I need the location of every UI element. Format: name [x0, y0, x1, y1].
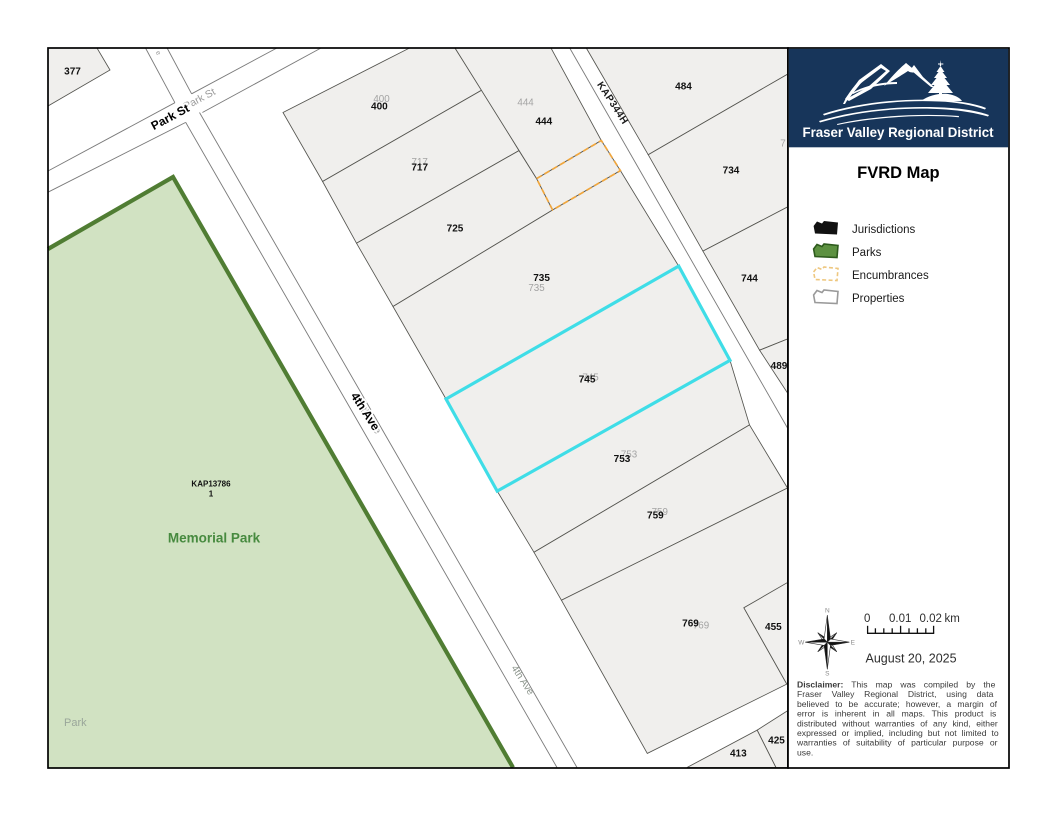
svg-text:Fraser Valley Regional Distric: Fraser Valley Regional District [803, 124, 994, 140]
svg-text:error is inherent in all maps.: error is inherent in all maps. This prod… [797, 709, 996, 719]
svg-text:444: 444 [535, 116, 552, 127]
svg-text:0.02: 0.02 [920, 613, 942, 625]
svg-text:769: 769 [682, 618, 699, 629]
svg-text:FVRD Map: FVRD Map [857, 164, 940, 182]
svg-text:expressed or implied, includin: expressed or implied, including but not … [797, 728, 999, 738]
svg-text:distributed without warranties: distributed without warranties of any ki… [797, 718, 998, 728]
svg-text:August 20, 2025: August 20, 2025 [866, 652, 957, 666]
svg-text:455: 455 [765, 622, 782, 633]
svg-text:489: 489 [771, 361, 788, 372]
svg-text:400: 400 [371, 102, 388, 113]
svg-text:744: 744 [741, 273, 758, 284]
svg-text:Memorial Park: Memorial Park [168, 531, 261, 546]
svg-text:377: 377 [64, 66, 81, 77]
svg-text:Encumbrances: Encumbrances [852, 270, 929, 282]
svg-text:735: 735 [533, 273, 550, 284]
svg-text:444: 444 [517, 98, 534, 109]
svg-text:W: W [798, 640, 805, 647]
svg-text:425: 425 [768, 736, 785, 747]
svg-text:484: 484 [675, 81, 692, 92]
svg-text:Jurisdictions: Jurisdictions [852, 224, 916, 236]
svg-text:use.: use. [797, 747, 813, 757]
svg-text:Fraser Valley Regional Distric: Fraser Valley Regional District, using d… [797, 689, 994, 699]
svg-text:753: 753 [614, 454, 631, 465]
svg-text:1: 1 [209, 489, 214, 498]
svg-text:Parks: Parks [852, 247, 882, 259]
svg-text:KAP13786: KAP13786 [191, 479, 231, 488]
svg-text:759: 759 [647, 511, 664, 522]
svg-text:725: 725 [447, 224, 464, 235]
svg-text:745: 745 [579, 374, 596, 385]
svg-text:717: 717 [411, 163, 428, 174]
svg-text:0: 0 [864, 613, 870, 625]
svg-text:413: 413 [730, 749, 747, 760]
svg-text:N: N [825, 608, 830, 615]
svg-text:735: 735 [528, 283, 545, 294]
svg-text:S: S [825, 671, 830, 678]
svg-text:Disclaimer: This map was compi: Disclaimer: This map was compiled by the [797, 680, 996, 690]
svg-text:0.01: 0.01 [889, 613, 911, 625]
svg-text:km: km [945, 613, 960, 625]
svg-text:Properties: Properties [852, 293, 905, 305]
svg-text:7: 7 [780, 139, 785, 150]
svg-text:E: E [851, 640, 856, 647]
svg-text:Park: Park [64, 717, 87, 729]
svg-text:warranties of suitability of p: warranties of suitability of particular … [796, 738, 998, 748]
svg-text:734: 734 [723, 165, 740, 176]
svg-text:believed to be accurate; howev: believed to be accurate; however, a marg… [797, 699, 998, 709]
